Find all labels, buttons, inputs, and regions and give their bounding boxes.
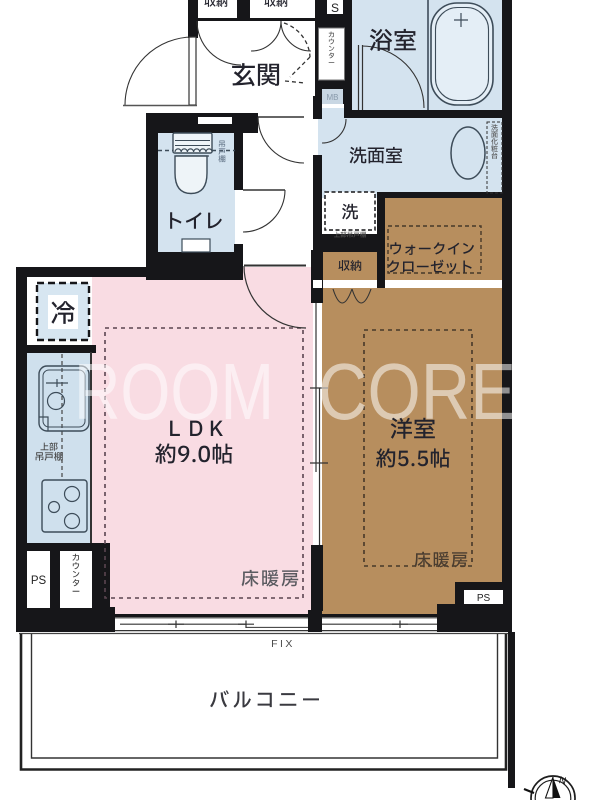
svg-text:ROOM: ROOM [74, 347, 274, 436]
svg-text:CORE: CORE [318, 347, 516, 436]
svg-text:FIX: FIX [271, 638, 295, 650]
svg-text:PS: PS [477, 593, 491, 604]
svg-text:PS: PS [31, 575, 47, 587]
svg-text:S: S [331, 1, 339, 15]
svg-text:MB: MB [327, 93, 339, 102]
